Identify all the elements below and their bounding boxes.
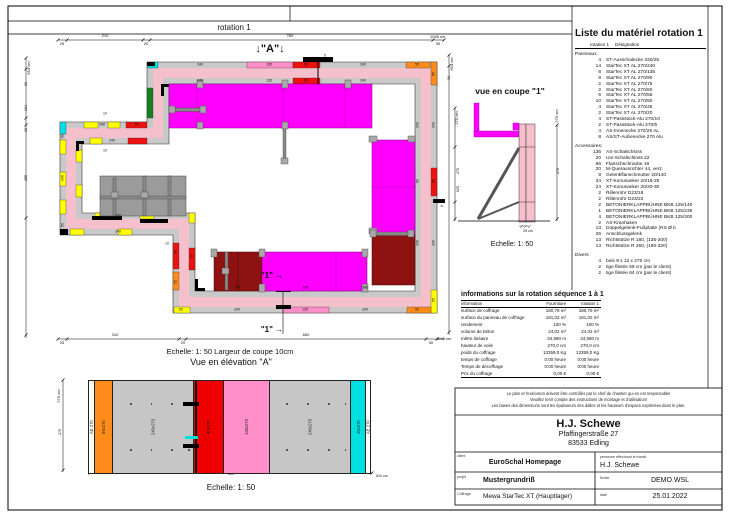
info-cell-label: Temps de décoffrage [461, 364, 533, 371]
rotation-info-table: informations sur la rotation séquence 1 … [461, 291, 601, 378]
material-item-name: Richtstütze R 250, (180-320) [606, 244, 667, 250]
material-col-name: Désignation [615, 42, 639, 47]
drawing-sheet: rotation 1 ↓"A"↓ 2521020760301045 cm2531… [0, 0, 730, 517]
tie-hole-dot [345, 403, 347, 405]
dim-label: 50 [61, 134, 65, 138]
elevation-panel: AE 270 [365, 381, 370, 473]
info-cell-fourniture: 24,02 m³ [533, 329, 566, 336]
tie-hole-dot [328, 449, 330, 451]
wedge-clamp-bar [183, 402, 199, 406]
dim-label: 55 [432, 72, 436, 76]
info-cell-rotation: 180,79 m² [566, 308, 599, 315]
dim-label: 270 cm [57, 389, 61, 402]
dim-label: 50 [190, 254, 194, 258]
info-cell-label: surface du panneau de coffrage [461, 315, 533, 322]
dim-label: 25 cm [523, 230, 533, 234]
elevation-panel: 135x270 [223, 381, 269, 473]
info-header-cell: rotation 1 [566, 301, 599, 308]
dim-label: 30 [448, 76, 452, 80]
dim-label: "1" → [261, 326, 283, 334]
info-row: surface du panneau de coffrage181,02 m²1… [461, 315, 601, 322]
dim-label: 240 [61, 175, 65, 181]
info-cell-label: temps de coffrage [461, 357, 533, 364]
dim-label: 240 [360, 63, 366, 67]
tie-hole-dot [171, 449, 173, 451]
dim-label: 50 [179, 308, 183, 312]
elevation-panel-label: 90x270 [194, 381, 223, 473]
disclaimer-line-2: Veuillez tenir compte des instructions d… [457, 397, 720, 402]
info-row: Temps de décoffrage0:00 heure0:00 heure [461, 364, 601, 371]
dim-label: 270 [457, 168, 461, 174]
dim-label: 50 [432, 179, 436, 183]
info-cell-rotation: 0,00 € [566, 371, 599, 378]
material-list-title: Liste du matériel rotation 1 [575, 28, 706, 39]
dim-label: 270 [59, 429, 63, 435]
dim-label: 240 [234, 308, 240, 312]
material-item-name: AS/ST-Außenecke 270 Alu [606, 135, 663, 141]
date-label: date [600, 493, 607, 497]
company-address-1: Pfaffingerstraße 27 [455, 431, 722, 438]
elevation-scale: Echelle: 1: 50 [131, 483, 331, 492]
file-value: DEMO.WSL [630, 477, 710, 484]
dim-label: "1" → [261, 272, 283, 280]
info-row: temps de coffrage0:00 heure0:00 heure [461, 357, 601, 364]
disclaimer-line-1: Le plan et l'exécution doivent être cont… [457, 391, 720, 396]
dim-label: 50 [304, 63, 308, 67]
info-table-title: informations sur la rotation séquence 1 … [461, 291, 601, 301]
dim-label: 270 [557, 168, 561, 174]
dim-label: 45 [151, 63, 155, 67]
dim-label: 134 [25, 105, 29, 111]
elevation-panel: 240x270 [269, 381, 350, 473]
info-cell-rotation: 181,02 m² [566, 315, 599, 322]
material-item: 8AS/ST-Außenecke 270 Alu [575, 135, 706, 141]
section-view-title: vue en coupe "1" [458, 86, 562, 96]
info-cell-fourniture: 270,0 cm [533, 343, 566, 350]
dim-label: 25 [60, 341, 64, 345]
info-cell-rotation: 0:00 heure [566, 357, 599, 364]
formwork-label: Coffrage [457, 492, 471, 496]
material-item-qty: 8 [575, 135, 601, 141]
elevation-direction-marker: ↓"A"↓ [240, 43, 300, 55]
material-section-title: Accessoires: [575, 144, 706, 149]
formwork-value: Mewa StarTec XT (Hauptlager) [483, 493, 572, 500]
dim-label: 240 [234, 286, 240, 290]
dim-label: 240 [115, 214, 121, 218]
dim-label: 55 [61, 223, 65, 227]
info-row: Prix du coffrage0,00 €0,00 € [461, 371, 601, 379]
material-col-qty: rotation 1 [575, 42, 609, 47]
dim-label: 240 [109, 139, 115, 143]
tie-hole-dot [171, 403, 173, 405]
dim-label: 55 [415, 308, 419, 312]
dim-label: 50 [416, 179, 420, 183]
elevation-panel-label: AE 270 [366, 381, 370, 473]
info-row: rendement100 %100 % [461, 322, 601, 329]
client-label: client [457, 454, 465, 458]
material-list-items: Panneaux4ST-Ausschalecke 330/2514StarTec… [575, 52, 706, 277]
dim-label: 270 cm [455, 111, 459, 124]
dim-label: 240 [432, 240, 436, 246]
info-row: mètre linéaire34,580 m34,580 m [461, 336, 601, 343]
elevation-panel-label: 45x270 [351, 381, 366, 473]
dim-label: 240 [197, 79, 203, 83]
dim-label: 240 [362, 286, 368, 290]
elevation-panel-label: 135x270 [224, 381, 269, 473]
tie-hole-dot [286, 449, 288, 451]
info-cell-label: rendement [461, 322, 533, 329]
tie-hole-dot [130, 449, 132, 451]
dim-label: 629 [457, 186, 461, 192]
info-cell-fourniture: 0:00 heure [533, 357, 566, 364]
info-header-row: informationFourniturerotation 1 [461, 301, 601, 309]
dim-label: 210 [102, 34, 109, 38]
info-table-rows: informationFourniturerotation 1surface d… [461, 301, 601, 379]
dim-label: 55 [174, 280, 178, 284]
client-value: EuroSchal Homepage [455, 459, 595, 466]
dim-label: 810 cm [376, 475, 388, 479]
tie-hole-dot [130, 403, 132, 405]
elevation-view: AE 27055x270240x27090x270135x270240x2704… [88, 380, 371, 474]
dim-label: 135 [302, 308, 308, 312]
dim-label: 5 [324, 54, 326, 58]
dim-label: 654 cm [450, 57, 454, 70]
info-cell-fourniture: 34,580 m [533, 336, 566, 343]
elevation-panel-label: 240x270 [270, 381, 350, 473]
material-item-qty: 2 [575, 271, 601, 277]
info-cell-rotation: 0:00 heure [566, 364, 599, 371]
dim-label: 135 [266, 79, 272, 83]
tie-hole-dot [307, 449, 309, 451]
rotation-tab: rotation 1 [188, 23, 280, 32]
info-cell-label: poids du coffrage [461, 350, 533, 357]
info-cell-fourniture: 100 % [533, 322, 566, 329]
elevation-panel-label: 55x270 [95, 381, 112, 473]
info-cell-rotation: 24,02 m³ [566, 329, 599, 336]
material-item: 13Richtstütze R 250, (180-320) [575, 244, 706, 250]
info-cell-label: surface de coffrage [461, 308, 533, 315]
elevation-panel: 45x270 [350, 381, 366, 473]
dim-label: 135 [266, 63, 272, 67]
dim-label: 55 [432, 298, 436, 302]
elevation-panel-label: 240x270 [113, 381, 193, 473]
info-cell-label: hauteur de voile [461, 343, 533, 350]
info-cell-label: volume de béton [461, 329, 533, 336]
dim-label: 0 [441, 205, 445, 207]
info-cell-rotation: 100 % [566, 322, 599, 329]
dim-label: 270 cm [555, 109, 559, 122]
company-name: H.J. Schewe [455, 418, 722, 430]
dim-label: 660 [303, 333, 310, 337]
project-value: Mustergrundriß [483, 477, 535, 484]
dim-label: 240 [197, 63, 203, 67]
dim-label: 30 [436, 42, 440, 46]
info-row: poids du coffrage13359,0 Kg13359,0 Kg [461, 350, 601, 357]
dim-label: 240 [432, 122, 436, 128]
material-item: 2tige filetée 64 cm (par le client) [575, 271, 706, 277]
info-cell-fourniture: 180,79 m² [533, 308, 566, 315]
info-header-cell: information [461, 301, 533, 308]
material-list-header: rotation 1 Désignation [575, 42, 706, 49]
info-cell-fourniture: 13359,0 Kg [533, 350, 566, 357]
info-cell-fourniture: 0:00 heure [533, 364, 566, 371]
project-label: projet [457, 475, 466, 479]
dim-label: 240 [416, 240, 420, 246]
tie-hole-dot [328, 403, 330, 405]
dim-label: 255 [25, 175, 29, 181]
tie-hole-dot [307, 403, 309, 405]
dim-label: 20 [144, 42, 148, 46]
info-row: surface de coffrage180,79 m²180,79 m² [461, 308, 601, 315]
tie-hole-dot [345, 449, 347, 451]
dim-label: 760 [287, 34, 294, 38]
elevation-panel: 55x270 [94, 381, 112, 473]
info-cell-rotation: 13359,0 Kg [566, 350, 599, 357]
dim-label: 50 [135, 123, 139, 127]
dim-label: 10 [165, 242, 169, 246]
disclaimer-line-3: Les bases des dimensions sont les épaiss… [457, 403, 720, 408]
info-cell-label: mètre linéaire [461, 336, 533, 343]
plan-scale-note: Echelle: 1: 50 Largeur de coupe 10cm [120, 347, 340, 356]
tie-hole-dot [151, 403, 153, 405]
elevation-panel: 90x270 [193, 381, 223, 473]
dim-label: 55 [415, 63, 419, 67]
material-item-qty: 13 [575, 244, 601, 250]
dim-label: 1045 cm [436, 337, 451, 341]
dim-label: 240 [99, 123, 105, 127]
material-list: Liste du matériel rotation 1 rotation 1 … [575, 28, 706, 277]
dim-label: 10 [103, 149, 107, 153]
wedge-clamp-bar [183, 444, 199, 448]
clamp-bar-cyan [185, 436, 198, 439]
section-view-scale: Echelle: 1: 50 [462, 241, 562, 248]
dim-label: 1045 cm [430, 35, 445, 39]
dim-label: 25 [60, 42, 64, 46]
dim-label: 50 [304, 79, 308, 83]
info-cell-rotation: 34,580 m [566, 336, 599, 343]
date-value: 25.01.2022 [630, 493, 710, 500]
tie-hole-dot [286, 403, 288, 405]
worker-value: H.J. Schewe [600, 462, 639, 469]
elevation-title: Vue en élévation "A" [131, 357, 331, 367]
worker-label: personne effectuant le travail [600, 455, 646, 459]
material-section-title: Divers [575, 253, 706, 258]
info-cell-fourniture: 181,02 m² [533, 315, 566, 322]
dim-label: 20 [25, 128, 29, 132]
tie-hole-dot [188, 449, 190, 451]
material-section-title: Panneaux [575, 52, 706, 57]
dim-label: 50 [174, 250, 178, 254]
dim-label: 30 [429, 341, 433, 345]
elevation-panel: 240x270 [112, 381, 193, 473]
dim-label: 240 [360, 79, 366, 83]
dim-label: 240 [362, 308, 368, 312]
dim-label: 240 [115, 230, 121, 234]
info-header-cell: Fourniture [533, 301, 566, 308]
dim-label: 654 cm [27, 61, 31, 74]
dim-label: 20 [181, 341, 185, 345]
info-cell-label: Prix du coffrage [461, 371, 533, 378]
dim-label: 310 [112, 333, 119, 337]
company-address-2: 83533 Edling [455, 440, 722, 447]
dim-label: 135 [302, 286, 308, 290]
info-cell-fourniture: 0,00 € [533, 371, 566, 378]
material-item-name: tige filetée 64 cm (par le client) [606, 271, 671, 277]
section-cut-line [195, 381, 197, 473]
file-label: fichier [600, 476, 610, 480]
info-cell-rotation: 270,0 cm [566, 343, 599, 350]
dim-label: 30 [25, 82, 29, 86]
info-row: volume de béton24,02 m³24,02 m³ [461, 329, 601, 336]
info-row: hauteur de voile270,0 cm270,0 cm [461, 343, 601, 350]
tie-hole-dot [151, 449, 153, 451]
dim-label: 240 [416, 122, 420, 128]
dim-label: 10 [103, 112, 107, 116]
